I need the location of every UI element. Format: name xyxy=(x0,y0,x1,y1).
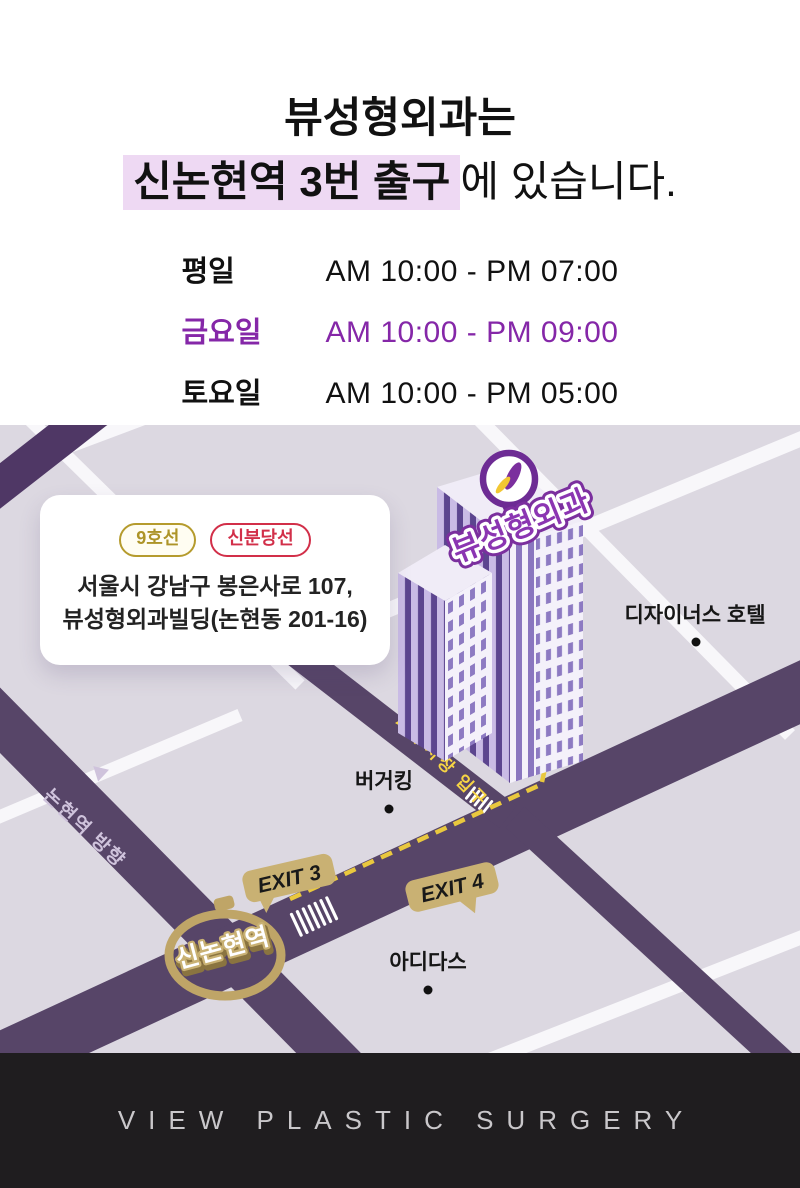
adidas-dot xyxy=(424,986,433,995)
hours-row-weekday: 평일 AM 10:00 - PM 07:00 xyxy=(182,248,619,290)
title-line1: 뷰성형외과는 xyxy=(0,88,800,149)
location-map: 논현역 방향 주차장 입구 xyxy=(0,425,800,1053)
address-line2: 뷰성형외과빌딩(논현동 201-16) xyxy=(63,603,368,636)
title-station-highlight: 신논현역 3번 출구 xyxy=(123,155,460,210)
hours-label: 금요일 xyxy=(182,309,272,351)
page: 뷰성형외과는 신논현역 3번 출구에 있습니다. 평일 AM 10:00 - P… xyxy=(0,0,800,1188)
hours-row-saturday: 토요일 AM 10:00 - PM 05:00 xyxy=(182,370,619,412)
hours-time: AM 10:00 - PM 05:00 xyxy=(326,377,619,411)
hotel-dot xyxy=(692,638,701,647)
footer: VIEW PLASTIC SURGERY xyxy=(0,1053,800,1188)
hours-label: 토요일 xyxy=(182,370,272,412)
hours-label: 평일 xyxy=(182,248,272,290)
address-text: 서울시 강남구 봉은사로 107, 뷰성형외과빌딩(논현동 201-16) xyxy=(63,570,368,637)
hours-time: AM 10:00 - PM 07:00 xyxy=(326,255,619,289)
burger-king-label: 버거킹 xyxy=(355,770,413,793)
title-suffix: 에 있습니다. xyxy=(460,158,677,205)
adidas-label: 아디다스 xyxy=(389,951,466,974)
burger-king-dot xyxy=(385,805,394,814)
hours-time: AM 10:00 - PM 09:00 xyxy=(326,316,619,350)
brand-wordmark: VIEW PLASTIC SURGERY xyxy=(105,1105,695,1136)
hours-row-friday: 금요일 AM 10:00 - PM 09:00 xyxy=(182,309,619,351)
subway-badges: 9호선 신분당선 xyxy=(119,523,310,556)
page-title: 뷰성형외과는 신논현역 3번 출구에 있습니다. xyxy=(0,0,800,214)
business-hours: 평일 AM 10:00 - PM 07:00 금요일 AM 10:00 - PM… xyxy=(182,248,619,412)
badge-line9: 9호선 xyxy=(119,523,196,556)
badge-shinbundang: 신분당선 xyxy=(210,523,310,556)
address-line1: 서울시 강남구 봉은사로 107, xyxy=(63,570,368,603)
hotel-label: 디자이너스 호텔 xyxy=(624,604,765,627)
title-line2: 신논현역 3번 출구에 있습니다. xyxy=(0,149,800,214)
address-card: 9호선 신분당선 서울시 강남구 봉은사로 107, 뷰성형외과빌딩(논현동 2… xyxy=(40,495,390,665)
